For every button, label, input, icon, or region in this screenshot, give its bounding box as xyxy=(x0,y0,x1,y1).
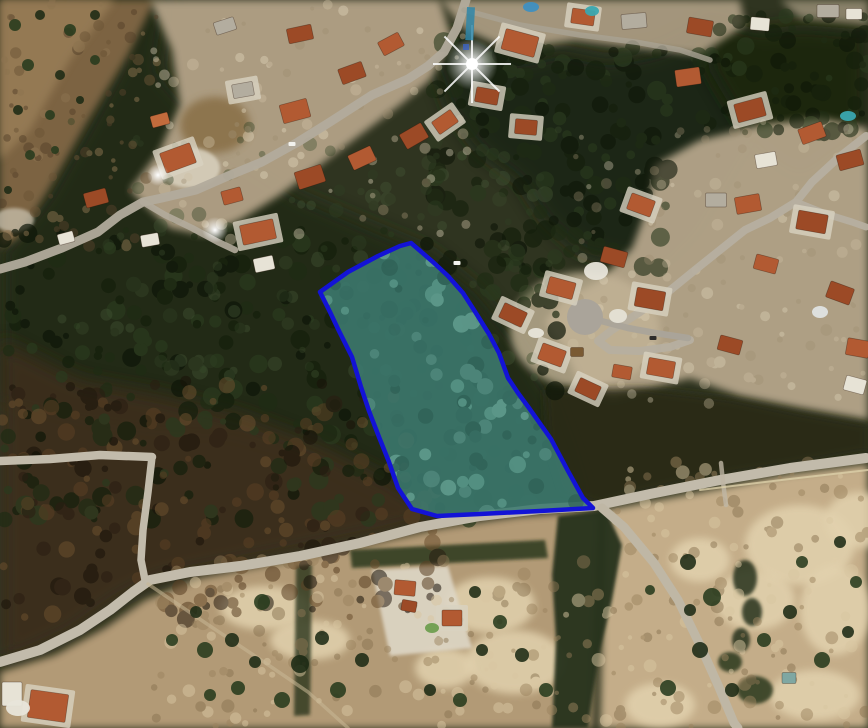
speckle xyxy=(469,369,483,383)
speckle xyxy=(413,340,427,354)
speckle xyxy=(777,337,783,343)
speckle xyxy=(168,77,179,88)
speckle xyxy=(311,659,318,666)
speckle xyxy=(732,61,747,76)
speckle xyxy=(476,144,489,157)
speckle xyxy=(47,1,56,10)
house-roof xyxy=(401,599,418,612)
pool xyxy=(585,6,599,16)
tree xyxy=(166,634,178,646)
speckle xyxy=(166,261,178,273)
terrain-patch xyxy=(718,652,742,672)
speckle xyxy=(626,81,632,87)
speckle xyxy=(126,393,135,402)
satellite-map-canvas[interactable] xyxy=(0,0,868,728)
speckle xyxy=(627,466,634,473)
speckle xyxy=(767,583,772,588)
speckle xyxy=(299,347,305,353)
speckle xyxy=(219,507,226,514)
speckle xyxy=(152,714,161,723)
house-roof xyxy=(394,580,416,597)
speckle xyxy=(405,64,411,70)
speckle xyxy=(841,31,850,40)
speckle xyxy=(453,315,470,332)
speckle xyxy=(551,61,564,74)
speckle xyxy=(350,84,361,95)
speckle xyxy=(370,559,380,569)
speckle xyxy=(610,607,617,614)
speckle xyxy=(258,667,266,675)
speckle xyxy=(279,256,293,270)
speckle xyxy=(212,428,228,444)
speckle xyxy=(810,72,819,81)
speckle xyxy=(33,484,50,501)
speckle xyxy=(796,299,801,304)
speckle xyxy=(609,104,618,113)
speckle xyxy=(660,104,673,117)
speckle xyxy=(744,696,757,709)
speckle xyxy=(794,623,802,631)
speckle xyxy=(221,699,234,712)
speckle xyxy=(3,230,14,241)
speckle xyxy=(555,691,559,695)
speckle xyxy=(346,420,355,429)
speckle xyxy=(508,244,525,261)
speckle xyxy=(617,118,627,128)
speckle xyxy=(561,136,579,154)
speckle xyxy=(743,544,748,549)
speckle xyxy=(614,708,626,720)
speckle xyxy=(656,630,661,635)
speckle xyxy=(713,23,727,37)
speckle xyxy=(460,33,466,39)
speckle xyxy=(20,319,30,329)
speckle xyxy=(146,419,157,430)
speckle xyxy=(651,135,660,144)
speckle xyxy=(573,154,578,159)
speckle xyxy=(444,710,452,718)
speckle xyxy=(368,179,373,184)
speckle xyxy=(289,197,296,204)
speckle xyxy=(592,96,609,113)
speckle xyxy=(780,63,789,72)
speckle xyxy=(322,28,329,35)
speckle xyxy=(725,606,735,616)
speckle xyxy=(157,289,173,305)
speckle xyxy=(490,223,498,231)
speckle xyxy=(652,692,656,696)
speckle xyxy=(489,168,500,179)
speckle xyxy=(732,506,743,517)
house xyxy=(845,338,868,359)
speckle xyxy=(511,78,529,96)
speckle xyxy=(323,621,329,627)
speckle xyxy=(614,508,620,514)
tree xyxy=(55,70,65,80)
tree xyxy=(90,10,100,20)
tree xyxy=(90,55,100,65)
speckle xyxy=(716,153,721,158)
speckle xyxy=(55,502,68,515)
terrain-patch xyxy=(670,538,730,582)
speckle xyxy=(48,194,53,199)
speckle xyxy=(662,259,670,267)
speckle xyxy=(498,242,505,249)
speckle xyxy=(468,631,474,637)
speckle xyxy=(437,221,447,231)
speckle xyxy=(180,496,188,504)
speckle xyxy=(488,256,506,274)
speckle xyxy=(99,2,103,6)
speckle xyxy=(369,201,379,211)
speckle xyxy=(96,248,102,254)
house xyxy=(846,9,862,20)
speckle xyxy=(568,703,578,713)
speckle xyxy=(231,607,241,617)
terrain-patch xyxy=(415,648,475,688)
speckle xyxy=(809,681,814,686)
speckle xyxy=(536,173,544,181)
house xyxy=(564,2,602,32)
speckle xyxy=(49,173,58,182)
speckle xyxy=(391,414,404,427)
speckle xyxy=(423,657,432,666)
house-roof xyxy=(612,364,633,380)
house xyxy=(394,580,416,597)
speckle xyxy=(307,453,321,467)
sun-glare-core xyxy=(466,58,478,70)
house-roof xyxy=(845,338,868,359)
speckle xyxy=(235,509,254,528)
speckle xyxy=(93,20,104,31)
speckle xyxy=(136,68,142,74)
tree xyxy=(842,626,854,638)
speckle xyxy=(324,342,331,349)
speckle xyxy=(363,312,370,319)
speckle xyxy=(721,58,731,68)
speckle xyxy=(523,451,530,458)
speckle xyxy=(800,605,805,610)
speckle xyxy=(834,337,839,342)
speckle xyxy=(35,128,45,138)
speckle xyxy=(741,633,746,638)
tree xyxy=(4,186,12,194)
speckle xyxy=(710,541,717,548)
speckle xyxy=(413,689,425,701)
speckle xyxy=(109,437,118,446)
speckle xyxy=(298,542,304,548)
speckle xyxy=(359,215,366,222)
speckle xyxy=(111,158,116,163)
speckle xyxy=(673,691,684,702)
speckle xyxy=(71,411,80,420)
speckle xyxy=(497,499,506,508)
speckle xyxy=(346,640,356,650)
tree xyxy=(814,652,830,668)
speckle xyxy=(305,362,314,371)
speckle xyxy=(566,652,572,658)
speckle xyxy=(204,505,218,519)
house xyxy=(674,67,701,87)
speckle xyxy=(767,527,777,537)
speckle xyxy=(532,700,541,709)
speckle xyxy=(721,106,729,114)
speckle xyxy=(530,373,538,381)
speckle xyxy=(628,635,632,639)
speckle xyxy=(101,571,113,583)
speckle xyxy=(732,15,746,29)
speckle xyxy=(232,497,242,507)
speckle xyxy=(470,106,479,115)
speckle xyxy=(545,260,552,267)
speckle xyxy=(604,197,616,209)
speckle xyxy=(458,398,467,407)
speckle xyxy=(56,371,68,383)
speckle xyxy=(426,354,437,365)
speckle xyxy=(297,152,304,159)
speckle xyxy=(205,28,210,33)
house-roof xyxy=(571,348,584,357)
speckle xyxy=(40,142,52,154)
speckle xyxy=(701,135,709,143)
speckle xyxy=(586,184,591,189)
speckle xyxy=(353,453,369,469)
speckle xyxy=(334,185,346,197)
speckle xyxy=(651,228,670,247)
speckle xyxy=(339,286,353,300)
speckle xyxy=(193,455,206,468)
speckle xyxy=(121,241,131,251)
house-roof xyxy=(442,610,462,626)
speckle xyxy=(234,575,242,583)
speckle xyxy=(189,266,206,283)
speckle xyxy=(780,648,787,655)
speckle xyxy=(632,333,638,339)
speckle xyxy=(511,649,515,653)
speckle xyxy=(378,205,389,216)
speckle xyxy=(214,595,229,610)
speckle xyxy=(739,304,745,310)
speckle xyxy=(591,202,601,212)
tree xyxy=(197,642,213,658)
tree xyxy=(76,96,84,104)
speckle xyxy=(777,114,784,121)
speckle xyxy=(21,613,28,620)
speckle xyxy=(798,489,805,496)
speckle xyxy=(155,502,169,516)
speckle xyxy=(155,82,161,88)
speckle xyxy=(586,60,606,80)
speckle xyxy=(283,69,291,77)
house xyxy=(621,12,647,29)
speckle xyxy=(236,151,240,155)
house xyxy=(782,673,796,684)
speckle xyxy=(282,128,287,133)
speckle xyxy=(242,720,248,726)
speckle xyxy=(253,625,265,637)
speckle xyxy=(622,571,629,578)
speckle xyxy=(127,188,133,194)
speckle xyxy=(721,280,727,286)
speckle xyxy=(701,287,713,299)
speckle xyxy=(339,409,352,422)
speckle xyxy=(631,594,642,605)
speckle xyxy=(228,130,236,138)
speckle xyxy=(18,409,28,419)
speckle xyxy=(493,586,505,598)
speckle xyxy=(84,476,90,482)
speckle xyxy=(95,346,103,354)
speckle xyxy=(794,543,803,552)
speckle xyxy=(488,661,497,670)
speckle xyxy=(823,705,828,710)
speckle xyxy=(541,644,547,650)
speckle xyxy=(312,252,324,264)
speckle xyxy=(338,6,348,16)
speckle xyxy=(218,392,234,408)
speckle xyxy=(253,311,261,319)
speckle xyxy=(789,114,804,129)
speckle xyxy=(69,109,76,116)
speckle xyxy=(73,41,85,53)
speckle xyxy=(225,413,242,430)
speckle xyxy=(381,301,398,318)
speckle xyxy=(734,640,746,652)
speckle xyxy=(58,541,74,557)
speckle xyxy=(505,218,512,225)
speckle xyxy=(707,683,712,688)
speckle xyxy=(153,56,159,62)
speckle xyxy=(115,295,124,304)
speckle xyxy=(126,277,141,292)
speckle xyxy=(160,539,171,550)
speckle xyxy=(272,308,285,321)
speckle xyxy=(356,596,364,604)
tree xyxy=(850,576,862,588)
speckle xyxy=(159,250,165,256)
speckle xyxy=(117,422,136,441)
speckle xyxy=(592,653,606,667)
speckle xyxy=(635,169,641,175)
speckle xyxy=(502,703,513,714)
speckle xyxy=(644,255,654,265)
speckle xyxy=(209,670,216,677)
speckle xyxy=(601,153,610,162)
speckle xyxy=(213,261,223,271)
speckle xyxy=(369,685,382,698)
speckle xyxy=(802,249,807,254)
speckle xyxy=(730,543,739,552)
speckle xyxy=(243,537,254,548)
speckle xyxy=(323,0,333,10)
speckle xyxy=(415,270,421,276)
speckle xyxy=(195,701,206,712)
speckle xyxy=(549,216,559,226)
speckle xyxy=(841,337,846,342)
speckle xyxy=(235,53,244,62)
speckle xyxy=(788,569,800,581)
speckle xyxy=(203,136,215,148)
speckle xyxy=(738,144,747,153)
speckle xyxy=(728,616,733,621)
speckle xyxy=(838,474,843,479)
speckle xyxy=(10,47,21,58)
speckle xyxy=(262,431,275,444)
speckle xyxy=(771,516,783,528)
speckle xyxy=(528,649,540,661)
speckle xyxy=(247,483,264,500)
tree xyxy=(330,682,346,698)
pool xyxy=(6,700,30,716)
speckle xyxy=(192,207,207,222)
speckle xyxy=(39,504,55,520)
speckle xyxy=(737,37,755,55)
speckle xyxy=(805,14,813,22)
tree xyxy=(515,648,529,662)
speckle xyxy=(112,166,118,172)
house-roof xyxy=(621,12,647,29)
speckle xyxy=(44,605,61,622)
speckle xyxy=(271,500,285,514)
speckle xyxy=(61,93,70,102)
tree xyxy=(424,684,436,696)
speckle xyxy=(670,183,674,187)
speckle xyxy=(128,68,138,78)
tree xyxy=(453,693,467,707)
speckle xyxy=(201,418,212,429)
speckle xyxy=(123,227,129,233)
speckle xyxy=(755,680,760,685)
speckle xyxy=(164,278,177,291)
speckle xyxy=(522,175,532,185)
speckle xyxy=(331,575,338,582)
speckle xyxy=(397,61,402,66)
speckle xyxy=(422,317,428,323)
speckle xyxy=(99,413,110,424)
speckle xyxy=(455,706,464,715)
speckle xyxy=(663,273,672,282)
speckle xyxy=(265,566,281,582)
tree xyxy=(190,606,202,618)
speckle xyxy=(264,710,271,717)
speckle xyxy=(272,607,285,620)
speckle xyxy=(771,654,775,658)
speckle xyxy=(485,284,502,301)
speckle xyxy=(733,589,744,600)
speckle xyxy=(844,694,848,698)
speckle xyxy=(519,285,534,300)
speckle xyxy=(526,144,542,160)
speckle xyxy=(555,126,562,133)
house-roof xyxy=(514,119,537,136)
speckle xyxy=(788,25,796,33)
speckle xyxy=(553,112,567,126)
speckle xyxy=(140,440,147,447)
speckle xyxy=(600,714,613,727)
speckle xyxy=(508,259,521,272)
tree xyxy=(539,683,553,697)
speckle xyxy=(334,654,340,660)
speckle xyxy=(778,9,793,24)
pool xyxy=(812,306,828,318)
tree xyxy=(231,681,245,695)
speckle xyxy=(782,307,787,312)
speckle xyxy=(699,378,710,389)
speckle xyxy=(68,118,75,125)
speckle xyxy=(734,181,741,188)
speckle xyxy=(179,435,196,452)
speckle xyxy=(176,624,187,635)
